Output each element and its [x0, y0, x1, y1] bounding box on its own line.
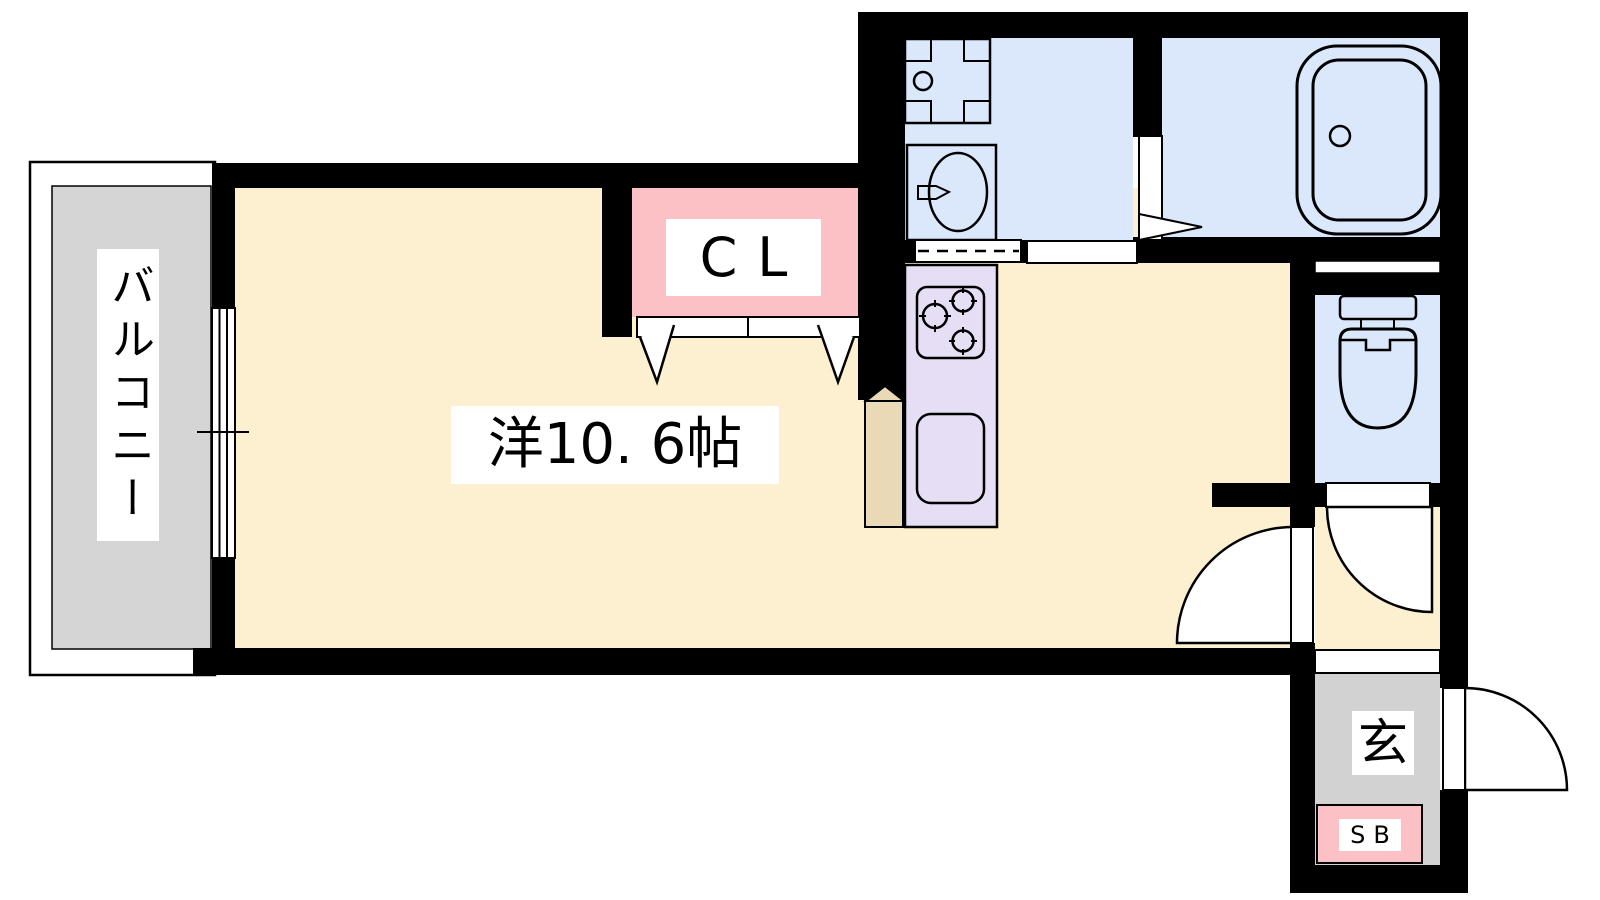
- toilet-door-leaf: [1326, 483, 1430, 507]
- floor-plan: バルコニー 洋10. 6帖 CL 玄 SB SB: [0, 0, 1600, 900]
- washroom-area: [905, 37, 1133, 242]
- entrance-step: [1315, 650, 1440, 673]
- wall-right-upper: [1440, 12, 1468, 688]
- entrance-door-leaf: [1443, 688, 1465, 790]
- wall-main-bottom: [193, 648, 1315, 675]
- refrigerator-space: [865, 400, 903, 527]
- washroom-sliding-door: [1027, 241, 1137, 263]
- wall-toilet-left: [1290, 237, 1315, 483]
- wall-entrance-bottom: [1290, 865, 1468, 893]
- wall-main-top: [212, 163, 905, 188]
- main-room-label: 洋10. 6帖: [451, 406, 779, 484]
- entrance-label: 玄: [1352, 711, 1414, 775]
- entrance-door-swing-arc: [1465, 688, 1567, 790]
- wall-closet-left: [602, 188, 632, 337]
- wall-main-left-upper: [212, 163, 235, 308]
- closet-label: CL: [666, 219, 821, 296]
- wall-kitchen-left: [858, 12, 905, 400]
- main-door-leaf: [1291, 527, 1313, 643]
- toilet-area: [1315, 295, 1440, 483]
- balcony-label: バルコニー: [97, 249, 159, 541]
- wall-top: [863, 12, 1468, 38]
- wall-hall-left-upper: [1290, 483, 1315, 527]
- wall-hall-left-lower: [1290, 643, 1315, 893]
- toilet-window: [1315, 261, 1440, 273]
- wall-bath-divider: [1133, 33, 1162, 137]
- washroom-boundary: [915, 240, 1021, 262]
- shoe-box-label: SB: [1339, 819, 1401, 851]
